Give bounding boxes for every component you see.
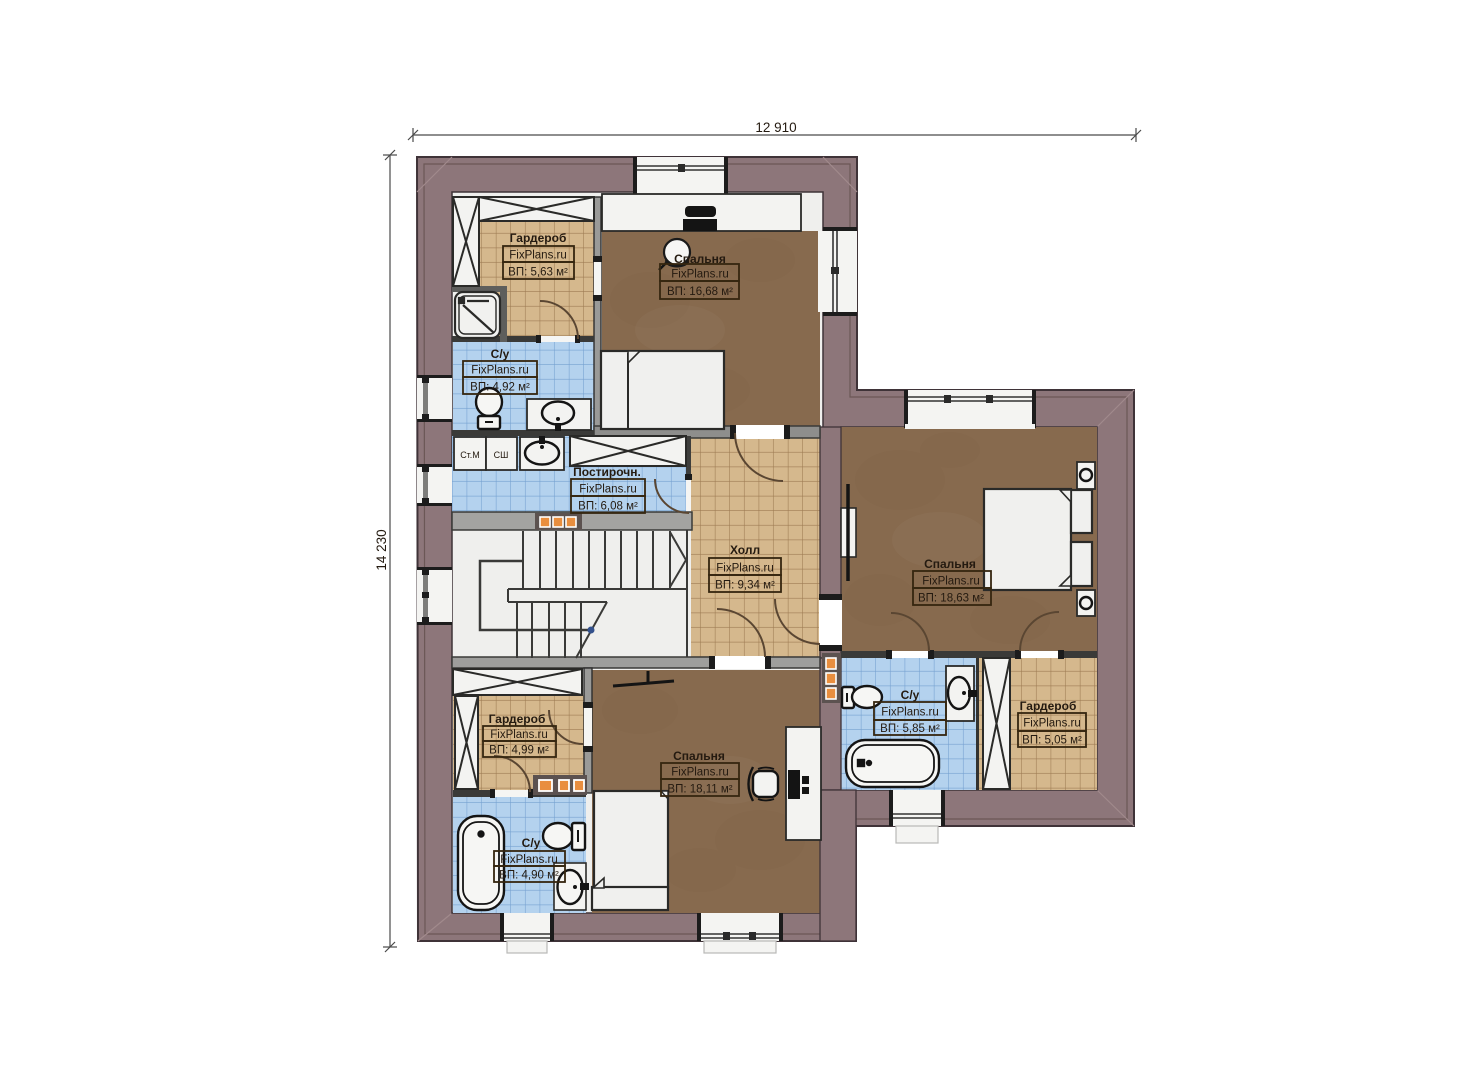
svg-text:ВП: 16,68 м²: ВП: 16,68 м² xyxy=(667,286,733,298)
svg-text:FixPlans.ru: FixPlans.ru xyxy=(671,269,729,281)
svg-text:С/у: С/у xyxy=(522,836,541,850)
svg-text:Спальня: Спальня xyxy=(673,749,725,763)
svg-text:FixPlans.ru: FixPlans.ru xyxy=(716,563,774,575)
svg-text:ВП: 4,99 м²: ВП: 4,99 м² xyxy=(489,745,549,757)
svg-text:FixPlans.ru: FixPlans.ru xyxy=(881,707,939,719)
svg-text:ВП: 5,05 м²: ВП: 5,05 м² xyxy=(1022,735,1082,747)
svg-text:FixPlans.ru: FixPlans.ru xyxy=(490,729,548,741)
svg-text:14 230: 14 230 xyxy=(374,529,389,570)
svg-text:ВП: 9,34 м²: ВП: 9,34 м² xyxy=(715,580,775,592)
svg-text:FixPlans.ru: FixPlans.ru xyxy=(471,365,529,377)
svg-text:Гардероб: Гардероб xyxy=(510,231,567,245)
svg-text:С/у: С/у xyxy=(901,688,920,702)
svg-text:ВП: 5,85 м²: ВП: 5,85 м² xyxy=(880,723,940,735)
svg-text:С/у: С/у xyxy=(491,347,510,361)
svg-text:Гардероб: Гардероб xyxy=(1020,699,1077,713)
svg-text:ВП: 6,08 м²: ВП: 6,08 м² xyxy=(578,501,638,513)
svg-text:ВП: 18,11 м²: ВП: 18,11 м² xyxy=(667,784,732,796)
svg-text:ВП: 4,92 м²: ВП: 4,92 м² xyxy=(470,382,530,394)
svg-text:Холл: Холл xyxy=(730,543,760,557)
svg-text:FixPlans.ru: FixPlans.ru xyxy=(671,767,729,779)
svg-text:ВП: 5,63 м²: ВП: 5,63 м² xyxy=(508,267,568,279)
svg-text:Гардероб: Гардероб xyxy=(489,712,546,726)
svg-text:FixPlans.ru: FixPlans.ru xyxy=(500,854,558,866)
svg-text:12 910: 12 910 xyxy=(755,120,796,135)
svg-text:ВП: 18,63 м²: ВП: 18,63 м² xyxy=(918,593,984,605)
svg-text:FixPlans.ru: FixPlans.ru xyxy=(579,484,637,496)
svg-text:СШ: СШ xyxy=(494,450,509,460)
svg-text:Постирочн.: Постирочн. xyxy=(573,465,641,479)
svg-text:ВП: 4,90 м²: ВП: 4,90 м² xyxy=(499,870,559,882)
svg-text:Спальня: Спальня xyxy=(924,557,976,571)
svg-text:FixPlans.ru: FixPlans.ru xyxy=(1023,718,1081,730)
svg-text:FixPlans.ru: FixPlans.ru xyxy=(922,576,980,588)
svg-text:FixPlans.ru: FixPlans.ru xyxy=(509,250,567,262)
svg-text:Ст.М: Ст.М xyxy=(460,450,480,460)
